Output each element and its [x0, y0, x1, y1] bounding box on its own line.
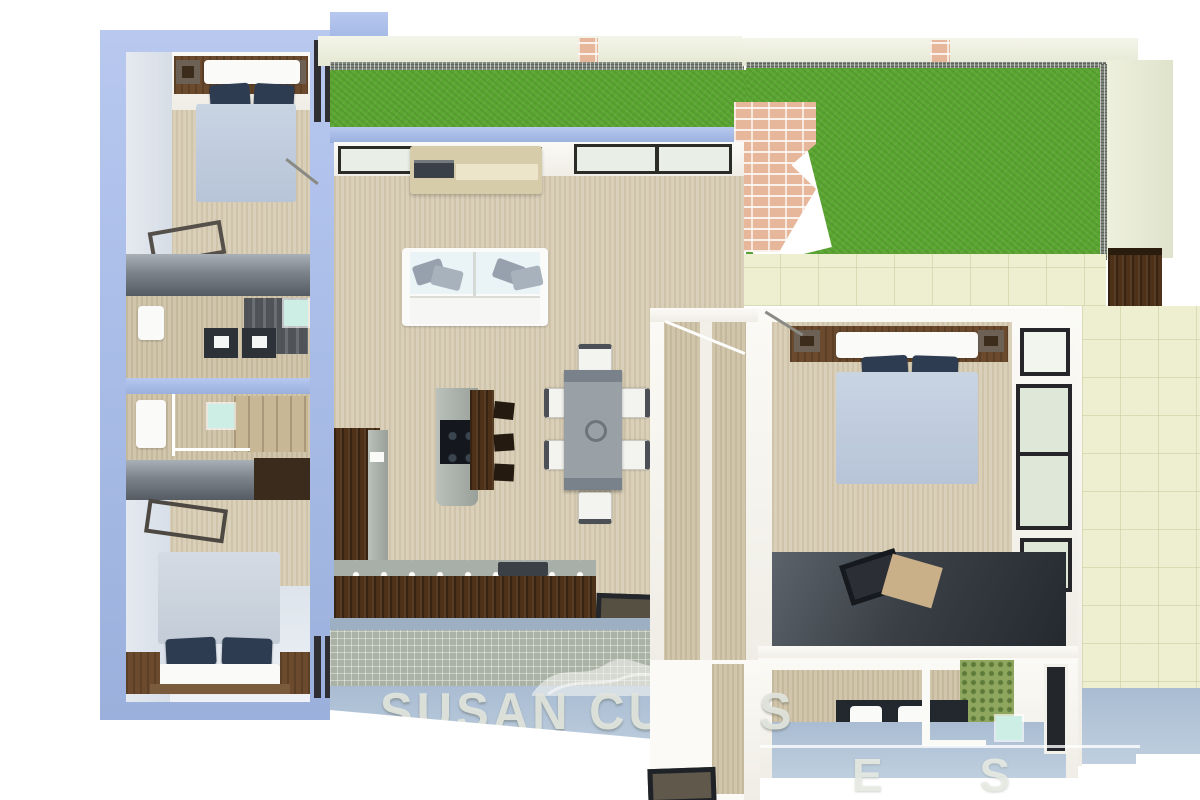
- entry-corridor-wall: [744, 660, 760, 800]
- lawn-strip: [330, 70, 746, 128]
- breakfast-bar: [470, 390, 494, 490]
- dining-table-end-top: [564, 370, 622, 382]
- sofa-seat: [410, 296, 540, 324]
- bar-stool: [494, 463, 515, 481]
- living-window-left: [338, 146, 418, 174]
- tv-console-shelf: [456, 164, 538, 180]
- central-wall-window: [314, 636, 321, 698]
- garden-outer-wall-right: [1107, 60, 1173, 258]
- wardrobe-band-upper: [126, 254, 310, 296]
- bedroom1-lamp-left: [176, 60, 200, 84]
- dining-table-end-bottom: [564, 478, 622, 490]
- bedroom3-bed-blanket: [158, 552, 280, 644]
- garden-gravel-right: [1100, 64, 1107, 260]
- bedroom1-bed-blanket: [196, 104, 296, 202]
- bathroom1-mirror: [284, 300, 308, 326]
- closet-partition: [700, 322, 712, 660]
- bedroom3-navy-pillow-left: [165, 637, 216, 668]
- bathroom2-vanity-sink: [136, 400, 166, 448]
- closet-wall-left: [650, 308, 664, 660]
- dining-center-bowl: [585, 420, 607, 442]
- master-window-small-top: [1020, 328, 1070, 376]
- right-patio-floor: [1082, 688, 1200, 764]
- air-conditioner: [414, 160, 454, 178]
- bar-stool: [493, 433, 514, 451]
- countertop-item: [370, 452, 384, 462]
- patio-tile-band: [742, 254, 1106, 306]
- entry-doormat: [647, 767, 716, 800]
- bathroom2-closet: [234, 396, 308, 452]
- dining-chair-bottom: [578, 492, 612, 524]
- bottom-right-white: [1136, 754, 1200, 800]
- master-lamp-right: [978, 330, 1004, 352]
- washer-label: [214, 336, 229, 348]
- island-cooktop: [440, 420, 474, 464]
- bar-stool: [493, 401, 515, 420]
- living-window-right2: [656, 144, 732, 174]
- bathroom1-dryer: [242, 328, 276, 358]
- bedroom3-headboard-base: [150, 684, 290, 694]
- dryer-label: [252, 336, 267, 348]
- floorplan-render: SUSAN CURTIS E S: [0, 0, 1200, 800]
- bedroom1-left-wall: [126, 52, 172, 254]
- kitchen-counter-bottom: [334, 576, 596, 622]
- bedroom1-white-pillows: [204, 60, 300, 84]
- master-window-large: [1016, 384, 1072, 530]
- dining-chair-right2: [620, 440, 650, 470]
- bedroom3-navy-pillow-right: [222, 637, 273, 667]
- window-crossbar: [1020, 452, 1068, 456]
- dining-table: [564, 370, 622, 490]
- master-bed-blanket: [836, 372, 978, 484]
- wardrobe-brown-cabinet: [254, 458, 310, 502]
- watermark-partial-letters: E S: [852, 748, 1052, 794]
- living-north-wall: [330, 127, 744, 143]
- dining-chair-right1: [620, 388, 650, 418]
- living-window-right1: [574, 144, 658, 174]
- bathroom1-toilet: [138, 306, 164, 340]
- master-white-pillows: [836, 332, 978, 358]
- bathroom2-shower-glass-h: [172, 448, 250, 451]
- kitchen-sink: [498, 562, 548, 576]
- bathroom2-shower-glass-v: [172, 394, 175, 456]
- bathroom-mirror: [996, 716, 1022, 740]
- bathroom-mosaic-accent-wall: [960, 660, 1014, 722]
- bathroom-divider-wall: [126, 378, 310, 394]
- shower-partition-v: [922, 660, 930, 744]
- bathroom-window: [1044, 664, 1068, 754]
- bathroom2-mirror: [208, 404, 234, 428]
- bathroom1-washer: [204, 328, 238, 358]
